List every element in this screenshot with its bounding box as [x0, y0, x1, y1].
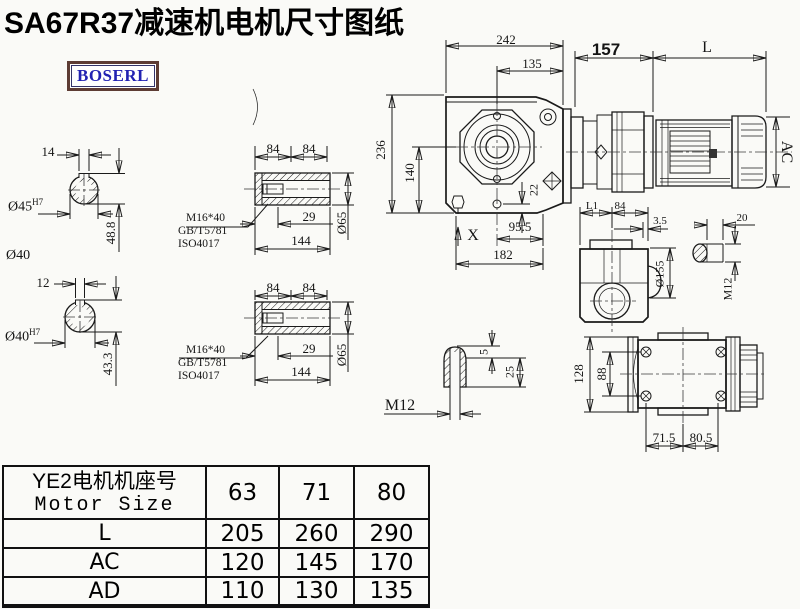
dim-side-flange: Ø155	[653, 261, 668, 288]
dim-shaft1-bore-value: Ø45	[8, 200, 32, 215]
table-header-col-71: 71	[279, 466, 354, 519]
dim-hub2-depth: 29	[303, 341, 316, 357]
motor-size-table: YE2电机机座号 Motor Size 63 71 80 L 205 260 2…	[2, 465, 430, 608]
dim-shaft1-bore: Ø45H7	[8, 197, 43, 216]
dim-shaft2-bore: Ø40H7	[5, 327, 40, 346]
table-cell: 145	[279, 548, 354, 577]
dim-side-length: 84	[615, 200, 626, 212]
dim-key-thread: M12	[385, 397, 415, 415]
dim-main-height: 236	[373, 140, 389, 160]
dim-shaft1-height: 48.8	[103, 222, 119, 245]
dim-hub2-length-b: 84	[303, 280, 316, 296]
drawing-sheet: SA67R37减速机电机尺寸图纸 BOSERL	[0, 0, 800, 609]
dim-rear-height: 128	[571, 364, 587, 384]
table-row-label: AD	[3, 577, 206, 606]
table-header-col-63: 63	[206, 466, 279, 519]
bolt-spec-size: M16*40	[178, 344, 227, 357]
dim-hub1-length-a: 84	[267, 141, 280, 157]
dim-key-height: 5	[477, 349, 492, 355]
dim-rear-bolt-span: 88	[594, 368, 610, 381]
bolt-spec-iso: ISO4017	[178, 370, 220, 382]
table-cell: 260	[279, 519, 354, 548]
dim-shaft1-key-width: 14	[42, 144, 55, 160]
table-row-AD: AD 110 130 135	[3, 577, 429, 606]
table-cell: 130	[279, 577, 354, 606]
dim-bushing-length: 20	[737, 212, 748, 224]
table-cell: 170	[354, 548, 429, 577]
dim-key-depth: 25	[503, 366, 518, 378]
dim-foot-offset: 22	[527, 184, 542, 196]
dim-side-l1: L1	[586, 200, 598, 212]
dim-axis-height: 140	[402, 163, 418, 183]
dim-shaft1-bore-tolerance: H7	[32, 197, 43, 207]
table-cell: 135	[354, 577, 429, 606]
main-assembly-view	[386, 40, 792, 270]
table-cell: 205	[206, 519, 279, 548]
dim-center-to-face: 95.5	[509, 219, 532, 235]
table-header-motor-size: YE2电机机座号 Motor Size	[3, 466, 206, 519]
dim-shaft1-alt-bore: Ø40	[6, 248, 30, 264]
table-header-row: YE2电机机座号 Motor Size 63 71 80	[3, 466, 429, 519]
dim-hub2-total: 144	[291, 364, 311, 380]
dim-hub1-depth: 29	[303, 209, 316, 225]
bolt-spec-gb: GB/T5781	[178, 225, 227, 237]
bolt-spec-note-bottom: M16*40 GB/T5781 ISO4017	[178, 344, 227, 383]
dim-input-length: 157	[592, 40, 620, 60]
table-cell: 110	[206, 577, 279, 606]
table-cell: 290	[354, 519, 429, 548]
table-header-cn: YE2电机机座号	[4, 469, 205, 494]
dim-main-width: 242	[496, 32, 516, 48]
dim-shaft2-bore-tolerance: H7	[29, 327, 40, 337]
gearbox-side-view	[580, 207, 755, 334]
table-header-en: Motor Size	[4, 494, 205, 517]
dim-main-face: 135	[522, 56, 542, 72]
table-cell: 120	[206, 548, 279, 577]
table-row-label: AC	[3, 548, 206, 577]
dim-hub1-od: Ø65	[334, 212, 350, 234]
table-row-L: L 205 260 290	[3, 519, 429, 548]
dim-hub2-od: Ø65	[334, 344, 350, 366]
dim-motor-length: L	[702, 39, 712, 57]
dim-base-length: 182	[493, 247, 513, 263]
table-header-col-80: 80	[354, 466, 429, 519]
dim-x-mark: X	[467, 227, 479, 245]
bolt-spec-iso: ISO4017	[178, 238, 220, 250]
bolt-spec-gb: GB/T5781	[178, 357, 227, 369]
dim-hub2-length-a: 84	[267, 280, 280, 296]
dim-side-gap: 3.5	[653, 215, 667, 227]
partial-view-arc	[253, 89, 258, 125]
dim-shaft2-key-width: 12	[37, 275, 50, 291]
bolt-spec-size: M16*40	[178, 212, 227, 225]
dim-motor-ac: AC	[777, 141, 795, 163]
bolt-spec-note-top: M16*40 GB/T5781 ISO4017	[178, 212, 227, 251]
dim-rear-b: 80.5	[690, 430, 713, 446]
table-row-AC: AC 120 145 170	[3, 548, 429, 577]
dim-bushing-thread: M12	[721, 278, 736, 301]
dim-shaft2-bore-value: Ø40	[5, 330, 29, 345]
dim-rear-a: 71.5	[653, 430, 676, 446]
dim-hub1-length-b: 84	[303, 141, 316, 157]
dim-shaft2-height: 43.3	[100, 353, 116, 376]
table-row-label: L	[3, 519, 206, 548]
dim-hub1-total: 144	[291, 233, 311, 249]
